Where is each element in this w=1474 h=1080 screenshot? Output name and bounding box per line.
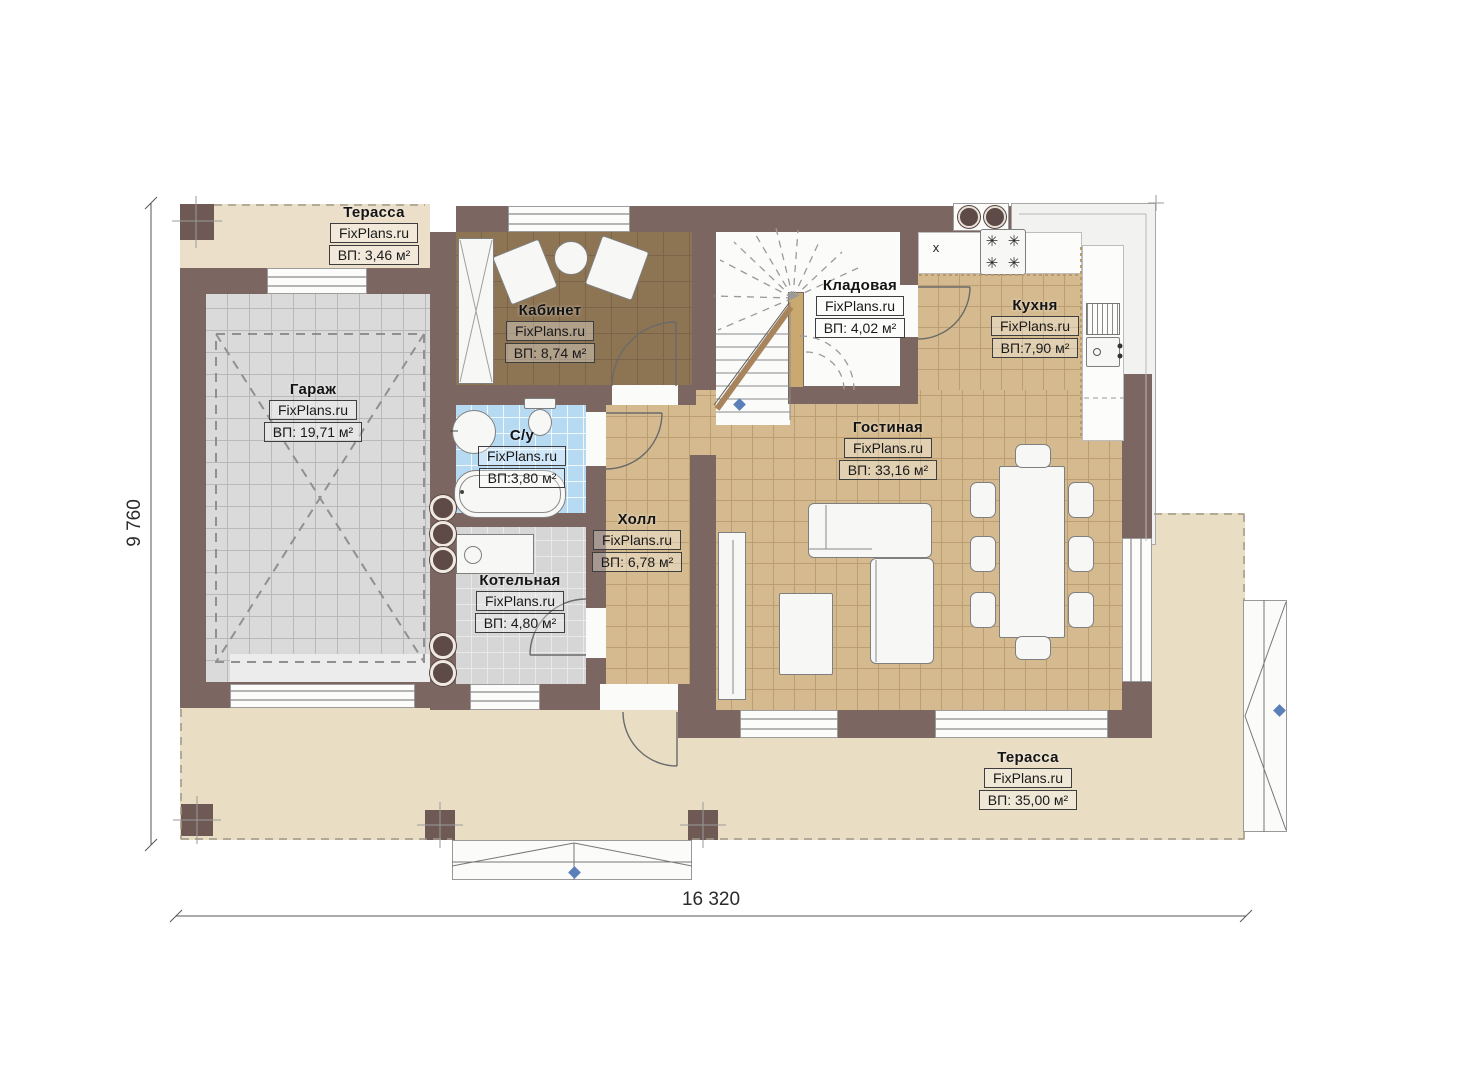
room-name: Кухня <box>1012 297 1057 314</box>
room-area: ВП: 3,46 м² <box>329 245 420 265</box>
dining-chair <box>1015 444 1051 468</box>
room-area: ВП: 4,02 м² <box>815 318 906 338</box>
room-area: ВП:3,80 м² <box>479 468 566 488</box>
room-label-storage: Кладовая FixPlans.ru ВП: 4,02 м² <box>765 277 955 338</box>
floor-plan: ✳ ✳ ✳ ✳ x <box>0 0 1474 1080</box>
room-area: ВП: 8,74 м² <box>505 343 596 363</box>
burner-icon: ✳ <box>986 256 999 271</box>
watermark: FixPlans.ru <box>991 316 1079 336</box>
window <box>935 710 1108 738</box>
watermark: FixPlans.ru <box>844 438 932 458</box>
room-label-terrace-top: Терасса FixPlans.ru ВП: 3,46 м² <box>279 204 469 265</box>
burner-icon: ✳ <box>1008 234 1021 249</box>
room-name: С/у <box>510 427 534 444</box>
dining-chair <box>1068 536 1094 572</box>
post <box>425 810 455 840</box>
room-name: Гараж <box>290 381 336 398</box>
wall <box>1122 682 1152 738</box>
coffee-table <box>779 593 833 675</box>
room-area: ВП:7,90 м² <box>992 338 1079 358</box>
boiler-unit-icon <box>430 547 456 573</box>
room-name: Холл <box>618 511 657 528</box>
garage-floor <box>206 294 430 682</box>
window <box>740 710 838 738</box>
watermark: FixPlans.ru <box>506 321 594 341</box>
sofa-section <box>808 503 932 558</box>
sofa-section <box>870 558 934 664</box>
watermark: FixPlans.ru <box>593 530 681 550</box>
window <box>267 268 367 294</box>
watermark: FixPlans.ru <box>330 223 418 243</box>
wall <box>678 684 716 738</box>
garage-door <box>230 684 415 708</box>
dining-chair <box>970 536 996 572</box>
dining-chair <box>970 592 996 628</box>
room-name: Кабинет <box>519 302 582 319</box>
room-label-hall: Холл FixPlans.ru ВП: 6,78 м² <box>542 511 732 572</box>
room-name: Кладовая <box>823 277 897 294</box>
boiler-sink <box>464 546 482 564</box>
side-table <box>554 241 588 275</box>
chimney-flue-icon <box>984 206 1006 228</box>
boiler-unit-icon <box>430 495 456 521</box>
stair-area-lower <box>716 390 790 425</box>
watermark: FixPlans.ru <box>478 446 566 466</box>
room-label-kitchen: Кухня FixPlans.ru ВП:7,90 м² <box>940 297 1130 358</box>
wall <box>692 232 716 390</box>
dimension-width: 16 320 <box>651 889 771 911</box>
post <box>181 804 213 836</box>
room-area: ВП: 19,71 м² <box>264 422 362 442</box>
room-label-living: Гостиная FixPlans.ru ВП: 33,16 м² <box>793 419 983 480</box>
room-label-office: Кабинет FixPlans.ru ВП: 8,74 м² <box>455 302 645 363</box>
wall <box>788 386 918 404</box>
dining-chair <box>1068 592 1094 628</box>
kitchen-mark: x <box>922 240 950 255</box>
chimney-flue-icon <box>958 206 980 228</box>
dining-chair <box>970 482 996 518</box>
garage-apron <box>230 654 430 682</box>
entry-door-opening <box>600 684 678 710</box>
watermark: FixPlans.ru <box>816 296 904 316</box>
room-area: ВП: 4,80 м² <box>475 613 566 633</box>
burner-icon: ✳ <box>986 234 999 249</box>
room-label-bathroom: С/у FixPlans.ru ВП:3,80 м² <box>427 427 617 488</box>
watermark: FixPlans.ru <box>476 591 564 611</box>
steps-right <box>1243 600 1287 832</box>
door-opening <box>612 385 678 405</box>
room-name: Терасса <box>997 749 1059 766</box>
wall <box>1122 374 1152 538</box>
room-label-terrace-bottom: Терасса FixPlans.ru ВП: 35,00 м² <box>933 749 1123 810</box>
window <box>470 684 540 710</box>
watermark: FixPlans.ru <box>984 768 1072 788</box>
boiler-unit-icon <box>430 633 456 659</box>
room-label-garage: Гараж FixPlans.ru ВП: 19,71 м² <box>218 381 408 442</box>
room-name: Гостиная <box>853 419 923 436</box>
post <box>688 810 718 840</box>
wall <box>180 268 206 708</box>
post <box>180 204 214 240</box>
room-area: ВП: 6,78 м² <box>592 552 683 572</box>
window <box>1122 538 1152 682</box>
toilet-tank <box>524 398 556 409</box>
stove: ✳ ✳ ✳ ✳ <box>980 229 1026 275</box>
boiler-unit-icon <box>430 521 456 547</box>
room-area: ВП: 35,00 м² <box>979 790 1077 810</box>
boiler-unit-icon <box>430 660 456 686</box>
dining-table <box>999 466 1065 638</box>
room-label-boiler: Котельная FixPlans.ru ВП: 4,80 м² <box>425 572 615 633</box>
room-name: Котельная <box>479 572 560 589</box>
dimension-height: 9 760 <box>124 463 146 583</box>
window <box>508 206 630 232</box>
burner-icon: ✳ <box>1008 256 1021 271</box>
dining-chair <box>1015 636 1051 660</box>
room-name: Терасса <box>343 204 405 221</box>
wall <box>690 455 716 705</box>
watermark: FixPlans.ru <box>269 400 357 420</box>
terrace-right-floor <box>1152 513 1245 709</box>
room-area: ВП: 33,16 м² <box>839 460 937 480</box>
dining-chair <box>1068 482 1094 518</box>
